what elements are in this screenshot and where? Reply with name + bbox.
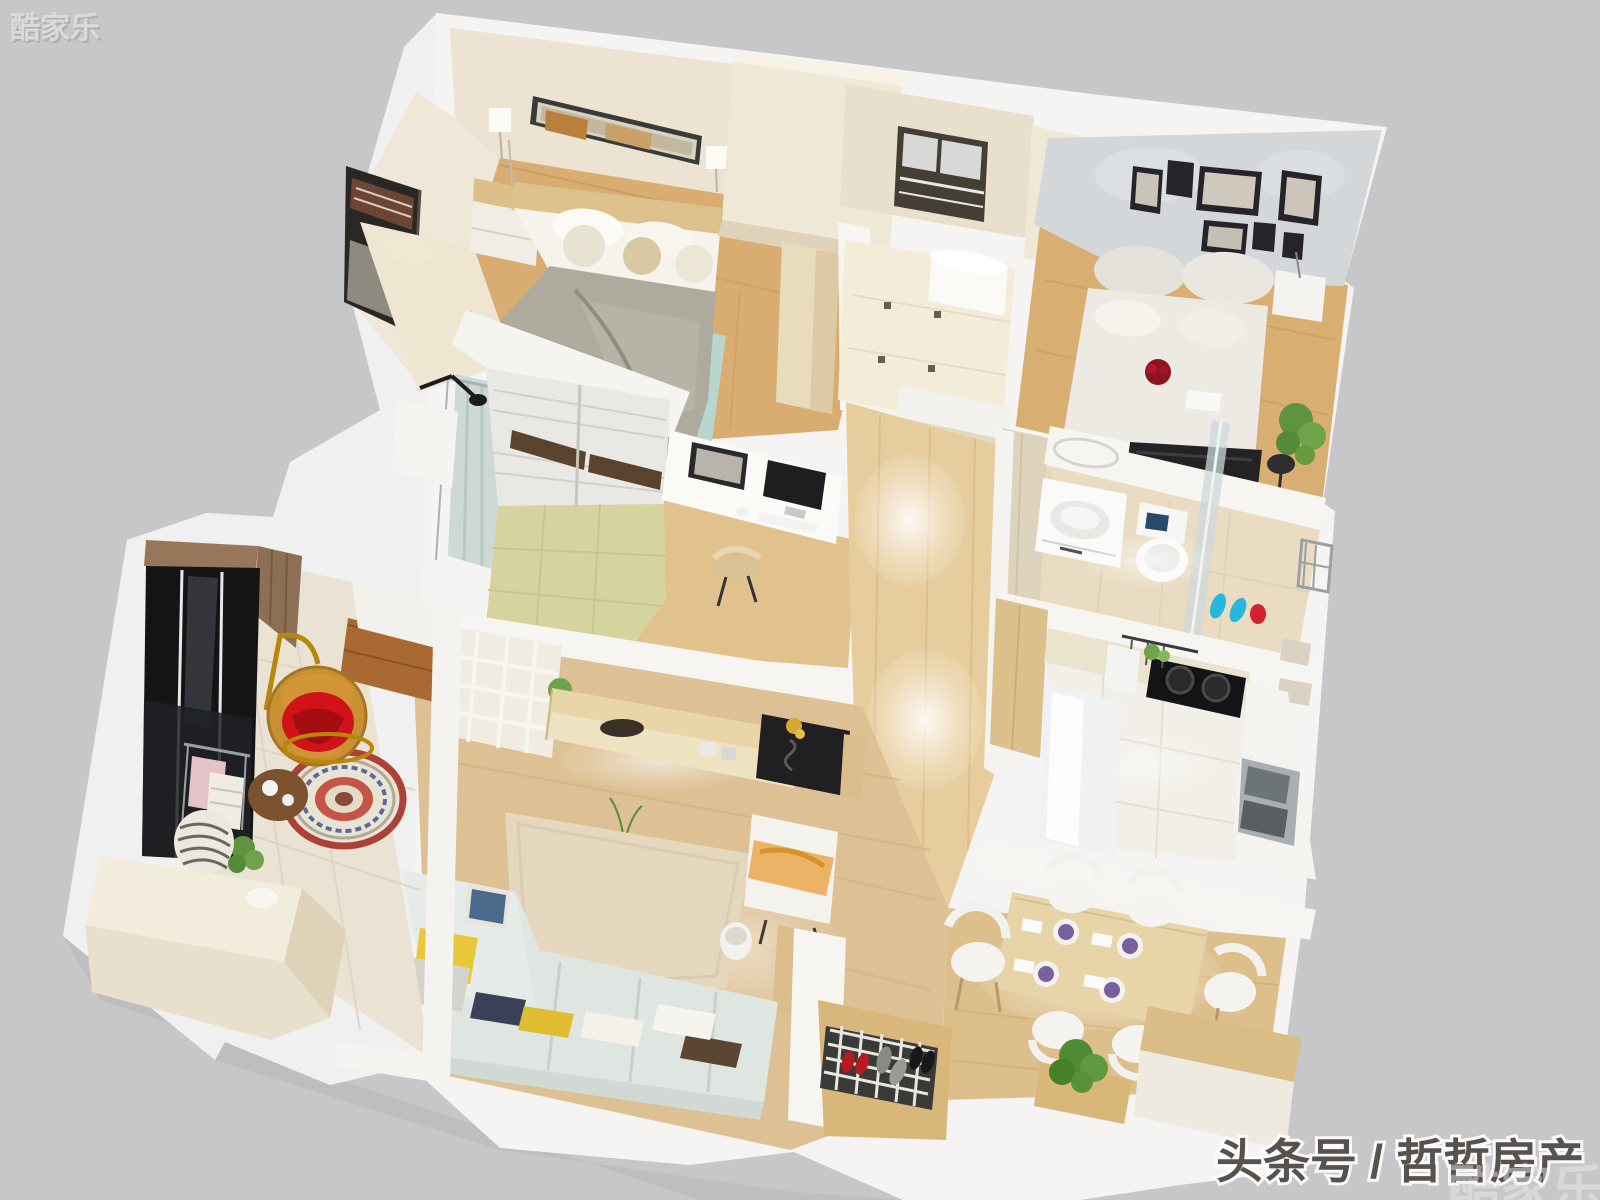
- svg-text:酷家乐: 酷家乐: [10, 12, 100, 45]
- svg-text:酷家乐: 酷家乐: [1448, 1162, 1600, 1200]
